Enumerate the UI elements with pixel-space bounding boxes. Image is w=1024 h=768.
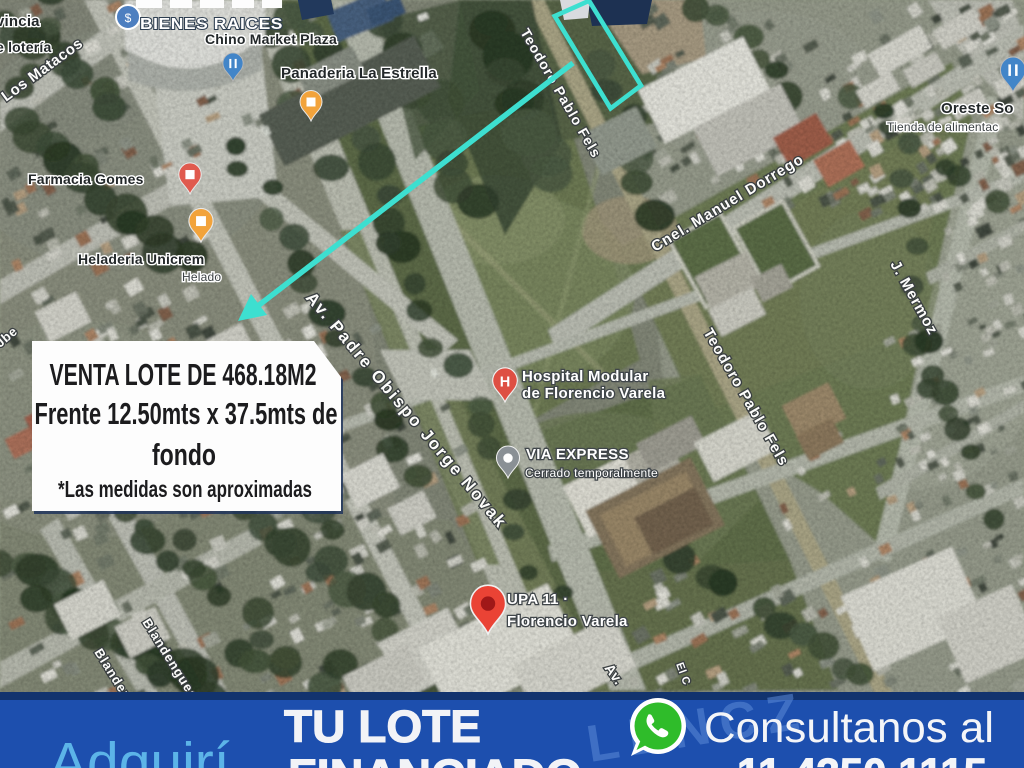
svg-text:Florencio Varela: Florencio Varela [507,613,628,630]
svg-text:*Las medidas son aproximadas: *Las medidas son aproximadas [58,476,312,502]
svg-text:UPA 11 ·: UPA 11 · [507,591,569,608]
svg-text:Chino Market Plaza: Chino Market Plaza [205,31,337,47]
svg-text:Adquirí: Adquirí [49,731,230,768]
svg-text:de Florencio Varela: de Florencio Varela [522,385,666,402]
svg-text:Consultanos al: Consultanos al [704,704,994,752]
svg-text:VENTA LOTE DE 468.18M2: VENTA LOTE DE 468.18M2 [50,357,317,392]
svg-text:FINANCIADO: FINANCIADO [288,750,582,768]
svg-text:Tienda de alimentac: Tienda de alimentac [887,120,998,134]
svg-text:Farmacia Gomes: Farmacia Gomes [28,171,144,187]
svg-text:Hospital Modular: Hospital Modular [522,368,648,385]
svg-text:TU LOTE: TU LOTE [284,701,481,752]
svg-text:Cerrado temporalmente: Cerrado temporalmente [525,466,658,480]
svg-text:e lotería: e lotería [0,39,52,55]
svg-text:11 4350 1115: 11 4350 1115 [737,750,987,768]
svg-text:BIENES RAICES: BIENES RAICES [140,16,283,33]
svg-text:Panaderia La Estrella: Panaderia La Estrella [281,65,437,82]
svg-text:Helado: Helado [182,270,221,284]
svg-text:$: $ [125,11,132,25]
svg-text:Heladeria Unicrem: Heladeria Unicrem [78,251,204,267]
svg-text:Frente 12.50mts x 37.5mts de: Frente 12.50mts x 37.5mts de [35,396,338,431]
svg-text:H: H [500,374,511,390]
svg-text:Oreste So: Oreste So [941,100,1014,117]
svg-text:VIA EXPRESS: VIA EXPRESS [526,446,629,463]
svg-text:vincia: vincia [0,13,40,30]
svg-text:fondo: fondo [152,437,216,472]
